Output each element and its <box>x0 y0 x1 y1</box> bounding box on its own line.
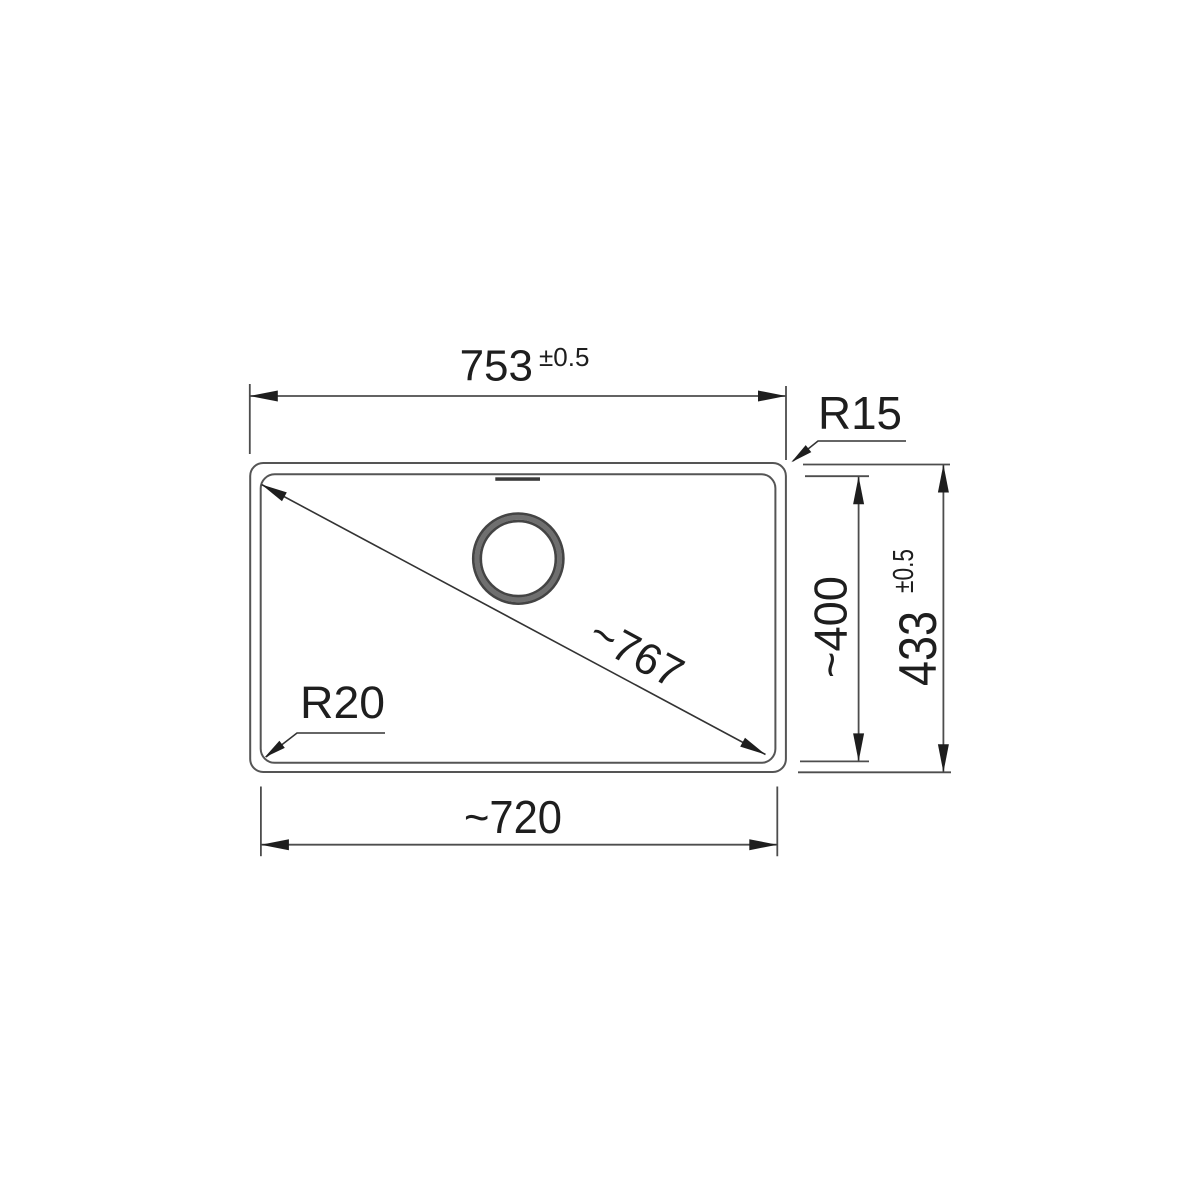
svg-text:R15: R15 <box>818 387 902 439</box>
svg-text:~400: ~400 <box>805 576 857 678</box>
svg-text:~720: ~720 <box>464 791 562 843</box>
svg-text:±0.5: ±0.5 <box>539 342 589 372</box>
svg-text:R20: R20 <box>300 677 385 728</box>
svg-text:753: 753 <box>460 342 533 391</box>
